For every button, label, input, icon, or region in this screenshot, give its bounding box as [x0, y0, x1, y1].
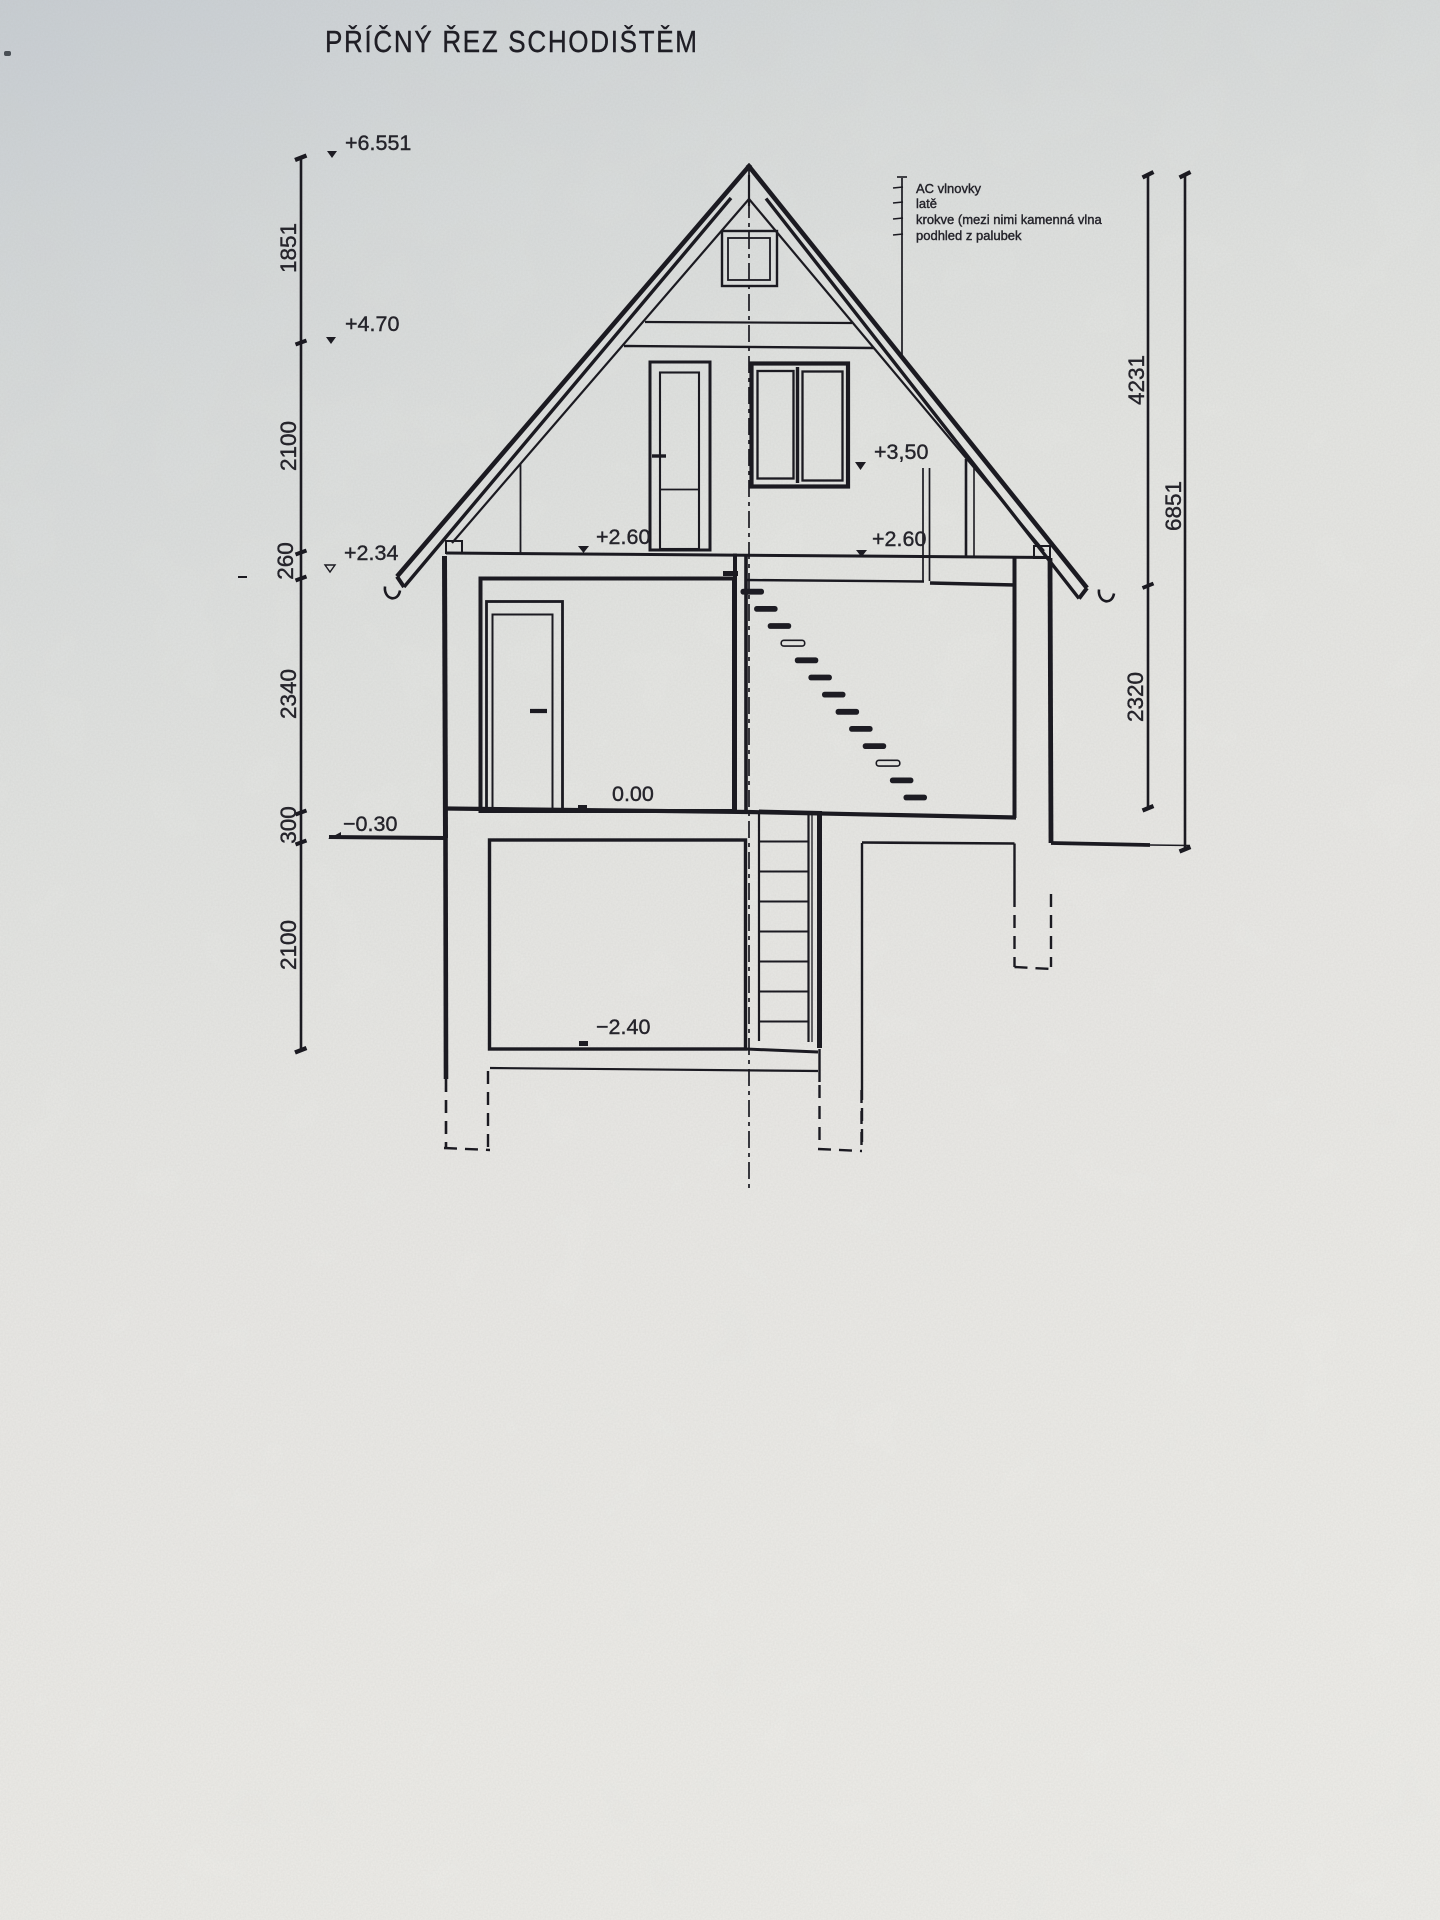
svg-text:2340: 2340 [276, 669, 301, 719]
svg-text:krokve (mezi nimi kamenná vlna: krokve (mezi nimi kamenná vlna [916, 212, 1102, 227]
svg-text:latě: latě [916, 196, 937, 211]
svg-text:+3,50: +3,50 [874, 440, 928, 464]
svg-text:260: 260 [273, 542, 298, 580]
svg-text:−2.40: −2.40 [596, 1015, 650, 1039]
svg-text:1851: 1851 [276, 223, 301, 273]
svg-text:+2.34: +2.34 [344, 541, 398, 565]
svg-text:+4.70: +4.70 [345, 312, 399, 336]
svg-text:4231: 4231 [1124, 355, 1149, 405]
svg-text:+6.551: +6.551 [345, 131, 411, 155]
svg-text:+2.60: +2.60 [872, 527, 926, 551]
svg-text:+2.60: +2.60 [596, 525, 650, 549]
svg-text:podhled z palubek: podhled z palubek [916, 228, 1022, 243]
svg-text:AC vlnovky: AC vlnovky [916, 181, 982, 196]
svg-text:2320: 2320 [1123, 672, 1148, 722]
svg-text:−0.30: −0.30 [343, 812, 397, 836]
svg-text:2100: 2100 [276, 920, 301, 970]
svg-text:2100: 2100 [276, 421, 301, 471]
svg-text:300: 300 [276, 806, 301, 844]
svg-text:6851: 6851 [1161, 481, 1186, 531]
svg-text:0.00: 0.00 [612, 782, 654, 806]
svg-text:PŘÍČNÝ ŘEZ SCHODIŠTĚM: PŘÍČNÝ ŘEZ SCHODIŠTĚM [325, 23, 699, 60]
